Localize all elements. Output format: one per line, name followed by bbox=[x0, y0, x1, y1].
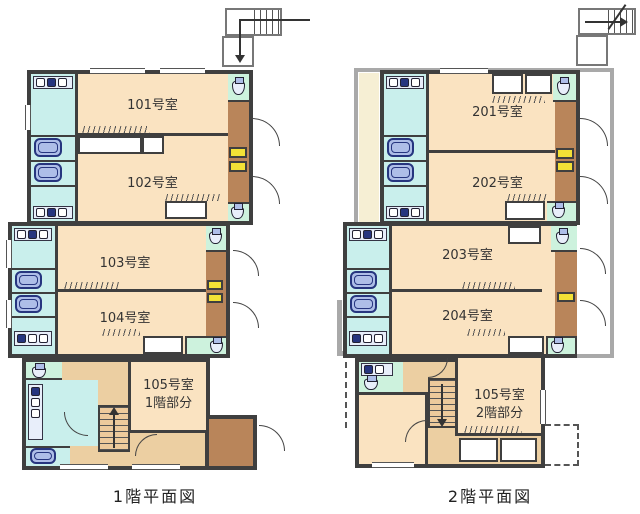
stair-arrow-line bbox=[441, 384, 443, 422]
stair-arrow-line-v bbox=[239, 19, 241, 57]
closet-door-hatch bbox=[490, 96, 545, 103]
wall bbox=[392, 289, 542, 292]
entry-door-arc-104 bbox=[233, 302, 259, 328]
bathtub-icon bbox=[15, 271, 42, 289]
room-103-label: 103号室 bbox=[70, 256, 180, 272]
first-floor-outline-stub bbox=[337, 300, 342, 355]
closet-201 bbox=[492, 74, 523, 94]
window bbox=[440, 68, 488, 74]
meter-box bbox=[556, 161, 574, 172]
stair-arrow-line-h bbox=[240, 19, 310, 21]
room-202-label: 202号室 bbox=[440, 176, 555, 192]
window bbox=[90, 68, 145, 74]
window bbox=[6, 240, 12, 268]
room-204-label: 204号室 bbox=[410, 309, 525, 325]
closet-203 bbox=[508, 226, 541, 244]
window bbox=[372, 462, 414, 468]
floor-plan-canvas: 101号室 102号室 103号室 104号室 bbox=[0, 0, 640, 514]
stair-steps bbox=[254, 10, 281, 34]
entry-door-arc-103 bbox=[233, 250, 259, 276]
wall bbox=[58, 289, 206, 292]
room-105-2f-label: 105号室 bbox=[458, 388, 541, 404]
closet-door-hatch bbox=[80, 126, 150, 133]
meter-box bbox=[556, 148, 574, 159]
stair-arrow-head-icon bbox=[109, 407, 119, 415]
bathtub-icon bbox=[350, 295, 377, 313]
closet-102 bbox=[165, 201, 207, 219]
kitchen-counter-icon bbox=[386, 76, 424, 89]
room-105-sublabel: 1階部分 bbox=[131, 396, 206, 412]
bathtub-icon bbox=[15, 295, 42, 313]
closet-door-hatch bbox=[505, 194, 547, 201]
closet-201-small bbox=[525, 74, 552, 94]
closet-door-hatch bbox=[462, 426, 522, 433]
bathtub-icon bbox=[350, 271, 377, 289]
closet-101 bbox=[78, 136, 142, 154]
entry-door-arc-101 bbox=[252, 118, 280, 146]
entry-door-arc-102 bbox=[252, 176, 280, 204]
caption-1f: 1階平面図 bbox=[55, 483, 255, 503]
bathtub-icon bbox=[387, 138, 414, 157]
wall bbox=[455, 433, 541, 436]
stair-arrow-line bbox=[113, 414, 115, 448]
bathtub-icon bbox=[34, 163, 62, 182]
closet-door-hatch bbox=[100, 329, 140, 336]
stair-arrow-head-icon bbox=[235, 55, 245, 63]
room-105-2f-sublabel: 2階部分 bbox=[458, 406, 541, 422]
meter-box bbox=[229, 147, 247, 158]
window bbox=[160, 68, 205, 74]
kitchen-counter-icon bbox=[33, 76, 73, 89]
closet-door-hatch bbox=[62, 282, 120, 289]
wall bbox=[131, 430, 206, 433]
stairs-outline-upper-1f bbox=[225, 8, 282, 36]
kitchen-counter-icon bbox=[33, 206, 73, 219]
stair-arrow-line-h bbox=[585, 21, 621, 23]
meter-box bbox=[207, 293, 223, 303]
bathtub-icon bbox=[34, 138, 62, 157]
kitchen-counter-icon bbox=[349, 228, 387, 241]
window bbox=[132, 464, 180, 470]
closet-105-2f-b bbox=[500, 438, 537, 462]
wall bbox=[426, 74, 429, 221]
closet-105-2f bbox=[459, 438, 498, 462]
meter-box bbox=[229, 161, 247, 172]
window bbox=[6, 300, 12, 328]
window bbox=[25, 105, 31, 130]
kitchen-counter-icon bbox=[386, 206, 424, 219]
entry-door-arc-105 bbox=[259, 425, 285, 451]
room-201-label: 201号室 bbox=[440, 105, 555, 121]
closet-door-hatch bbox=[460, 282, 515, 289]
window bbox=[540, 390, 546, 424]
room-101-label: 101号室 bbox=[95, 98, 210, 114]
meter-box bbox=[207, 280, 223, 290]
closet-204 bbox=[508, 336, 544, 354]
closet-101-small bbox=[142, 136, 164, 154]
washbasin-icon bbox=[349, 331, 387, 346]
wall bbox=[429, 150, 555, 153]
room-102-label: 102号室 bbox=[95, 176, 210, 192]
caption-2f: 2階平面図 bbox=[390, 483, 590, 503]
room-203-label: 203号室 bbox=[410, 248, 525, 264]
roof-outline-dashed-box bbox=[545, 424, 579, 466]
meter-box bbox=[557, 292, 575, 302]
entry-porch-105 bbox=[205, 415, 257, 470]
kitchen-counter-icon bbox=[28, 384, 43, 440]
bathtub-icon bbox=[387, 163, 414, 182]
closet-door-hatch bbox=[163, 194, 220, 201]
window bbox=[60, 464, 108, 470]
closet-door-hatch bbox=[465, 329, 505, 336]
kitchen-counter-icon bbox=[14, 228, 52, 241]
stairs-outline-lower-2f bbox=[576, 35, 608, 66]
stair-arrow-head-icon bbox=[620, 17, 628, 27]
roof-outline-dashed bbox=[345, 362, 347, 428]
bathtub-icon bbox=[30, 448, 56, 464]
room-104-label: 104号室 bbox=[70, 311, 180, 327]
stair-arrow-head-icon bbox=[437, 419, 447, 427]
room-105-label: 105号室 bbox=[131, 378, 206, 394]
closet-104 bbox=[143, 336, 183, 354]
washbasin-icon bbox=[14, 331, 52, 346]
closet-202 bbox=[505, 201, 545, 220]
